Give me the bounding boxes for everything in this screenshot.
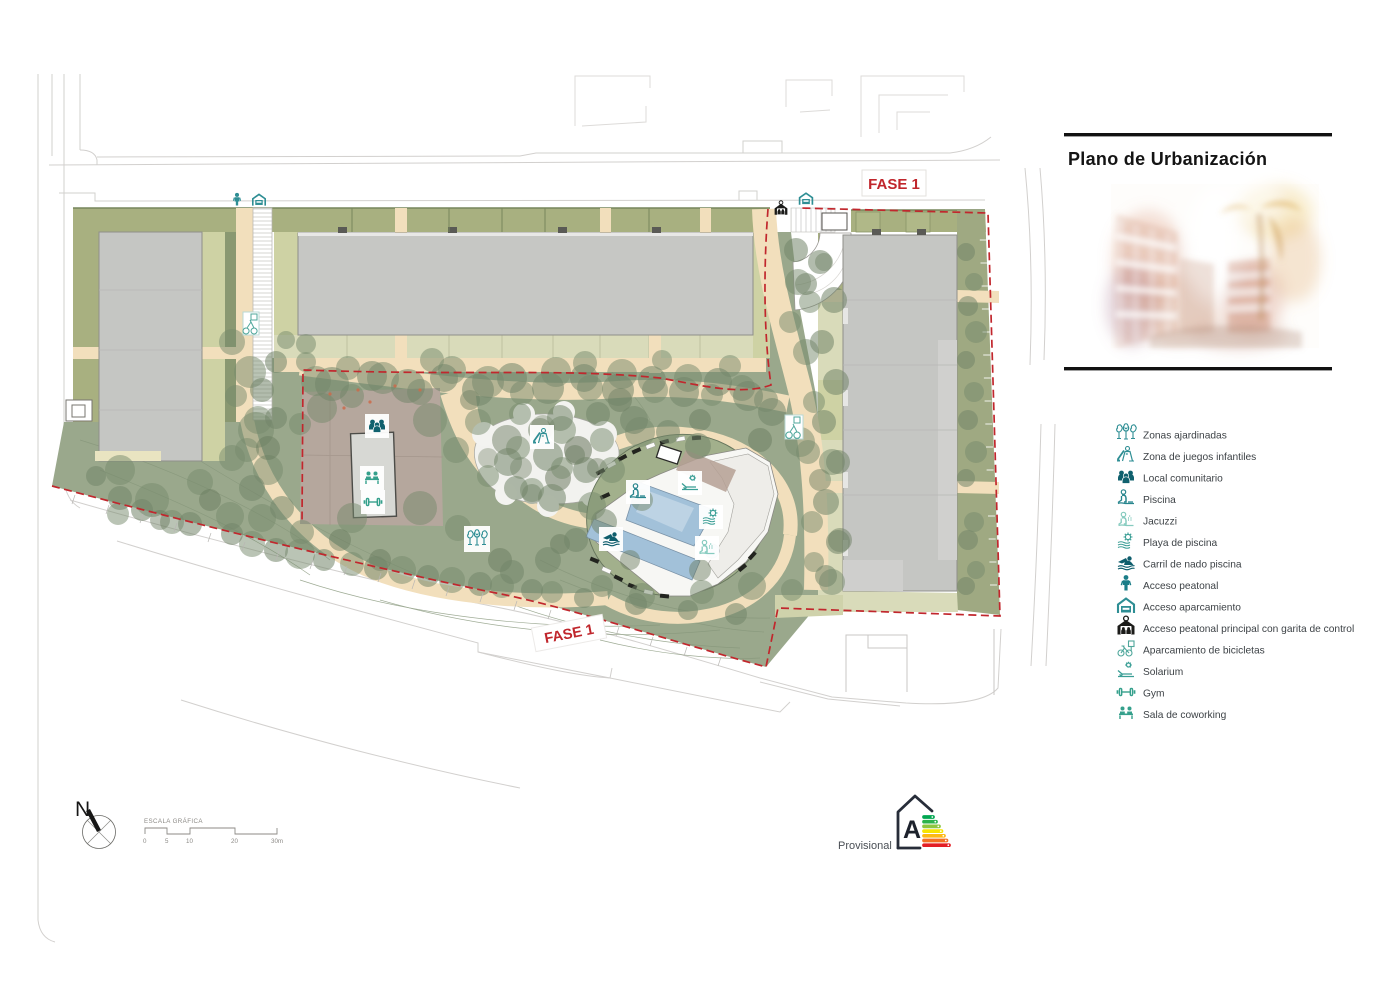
svg-text:30m: 30m — [271, 838, 283, 845]
svg-text:Acceso peatonal: Acceso peatonal — [1143, 581, 1218, 592]
svg-text:5: 5 — [165, 838, 169, 845]
svg-text:Acceso peatonal principal con: Acceso peatonal principal con garita de … — [1143, 624, 1354, 635]
svg-text:Piscina: Piscina — [1143, 495, 1176, 506]
svg-text:Solarium: Solarium — [1143, 667, 1183, 678]
svg-text:Provisional: Provisional — [838, 840, 892, 852]
svg-text:Zonas ajardinadas: Zonas ajardinadas — [1143, 431, 1227, 442]
svg-text:Gym: Gym — [1143, 689, 1165, 700]
svg-text:Carril de nado piscina: Carril de nado piscina — [1143, 560, 1242, 571]
svg-text:ESCALA GRÁFICA: ESCALA GRÁFICA — [144, 818, 203, 825]
svg-text:FASE 1: FASE 1 — [868, 176, 920, 193]
svg-text:Zona de juegos infantiles: Zona de juegos infantiles — [1143, 452, 1256, 463]
svg-text:Sala de coworking: Sala de coworking — [1143, 710, 1227, 721]
svg-text:20: 20 — [231, 838, 238, 845]
svg-text:Jacuzzi: Jacuzzi — [1143, 517, 1177, 528]
svg-text:Aparcamiento de bicicletas: Aparcamiento de bicicletas — [1143, 646, 1265, 657]
svg-text:Acceso aparcamiento: Acceso aparcamiento — [1143, 603, 1241, 614]
svg-text:N: N — [75, 798, 90, 821]
svg-text:Playa de piscina: Playa de piscina — [1143, 538, 1218, 549]
svg-text:Local comunitario: Local comunitario — [1143, 474, 1223, 485]
svg-text:A: A — [903, 816, 921, 844]
svg-text:10: 10 — [186, 838, 193, 845]
svg-text:Plano de Urbanización: Plano de Urbanización — [1068, 149, 1267, 169]
svg-text:0: 0 — [143, 838, 147, 845]
